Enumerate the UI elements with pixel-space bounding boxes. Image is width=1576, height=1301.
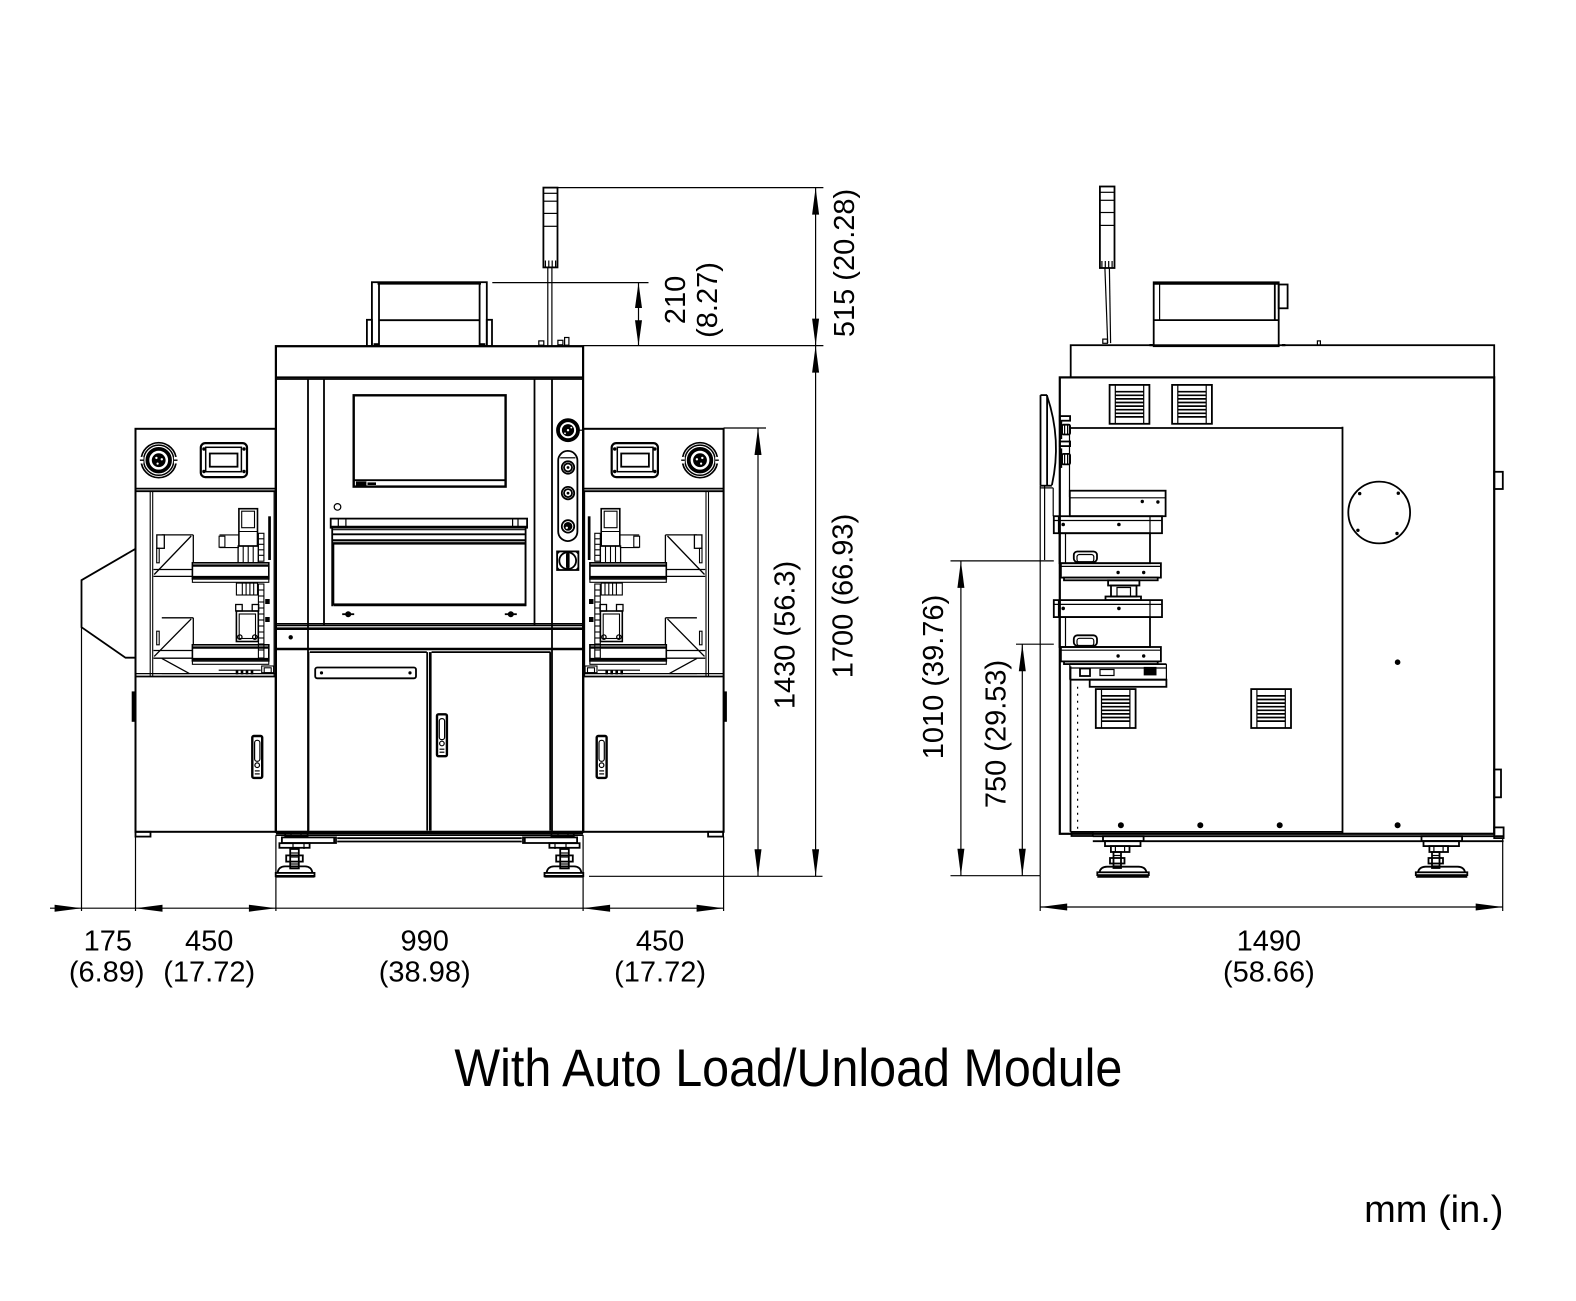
svg-text:(17.72): (17.72) [163,957,255,989]
svg-text:450: 450 [636,926,684,958]
svg-text:1490: 1490 [1237,926,1302,958]
svg-text:(8.27): (8.27) [692,262,724,338]
svg-text:mm (in.): mm (in.) [1364,1189,1503,1231]
svg-text:(6.89): (6.89) [69,957,145,989]
svg-text:(17.72): (17.72) [614,957,706,989]
svg-text:1430 (56.3): 1430 (56.3) [769,561,801,709]
svg-text:175: 175 [84,926,132,958]
svg-text:With Auto Load/Unload Module: With Auto Load/Unload Module [454,1039,1122,1098]
svg-text:(58.66): (58.66) [1223,957,1315,989]
svg-text:1700 (66.93): 1700 (66.93) [828,514,860,678]
svg-text:210: 210 [660,276,692,324]
svg-text:990: 990 [401,926,449,958]
svg-text:750 (29.53): 750 (29.53) [981,660,1013,808]
svg-text:1010 (39.76): 1010 (39.76) [918,595,950,759]
svg-text:450: 450 [185,926,233,958]
svg-text:(38.98): (38.98) [379,957,471,989]
svg-text:515 (20.28): 515 (20.28) [829,189,861,337]
